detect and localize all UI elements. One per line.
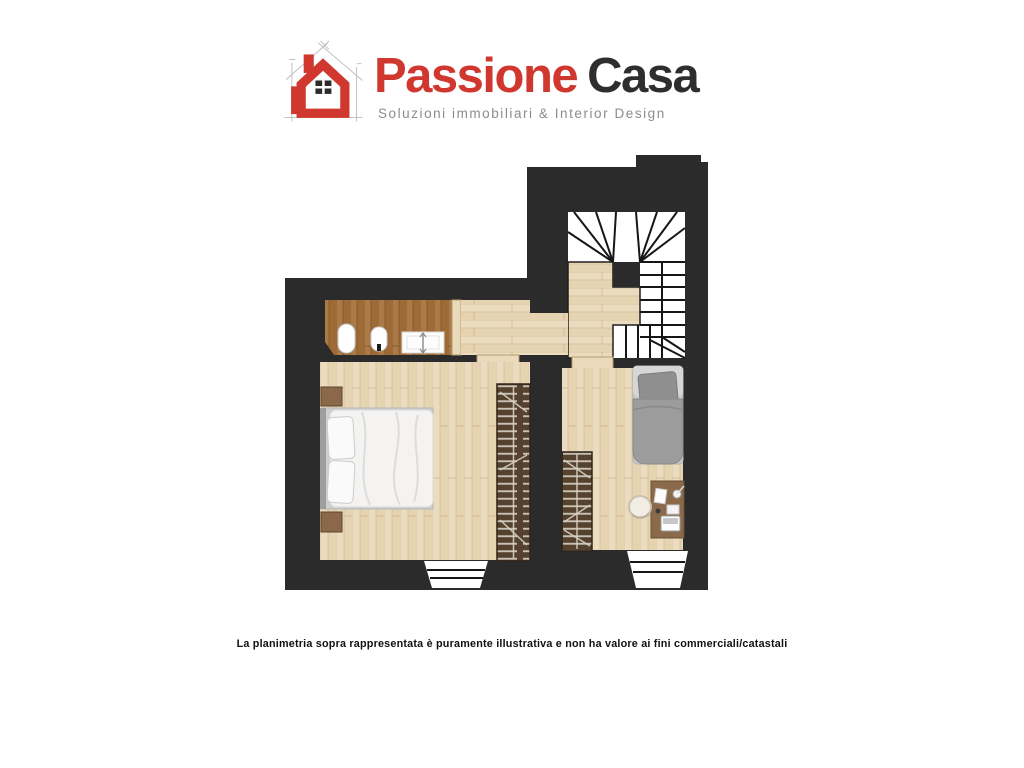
window-left — [424, 561, 488, 588]
single-bedroom-door-threshold — [572, 357, 613, 369]
bathroom — [325, 300, 461, 355]
single-bed — [633, 366, 683, 464]
wardrobe-master — [497, 384, 530, 561]
sink — [402, 332, 444, 353]
stairwell — [568, 212, 685, 358]
single-bedroom — [562, 366, 684, 551]
master-bedroom — [320, 362, 530, 561]
pillow — [327, 416, 355, 459]
window-right — [627, 551, 688, 588]
double-bed — [320, 408, 433, 509]
master-bedroom-door-threshold — [477, 355, 519, 363]
floor-plan — [0, 0, 1024, 768]
pillow — [327, 460, 355, 503]
nightstand-top — [321, 387, 342, 406]
desk-papers — [654, 488, 667, 503]
nightstand-bottom — [321, 512, 342, 532]
desk — [651, 481, 684, 538]
stair-post — [613, 262, 640, 287]
bathroom-door-threshold — [452, 300, 461, 355]
toilet — [338, 324, 355, 353]
desk-chair — [629, 496, 651, 518]
laptop — [661, 516, 680, 531]
bidet — [371, 327, 387, 351]
wardrobe-single — [562, 452, 592, 551]
disclaimer-text: La planimetria sopra rappresentata è pur… — [0, 638, 1024, 650]
